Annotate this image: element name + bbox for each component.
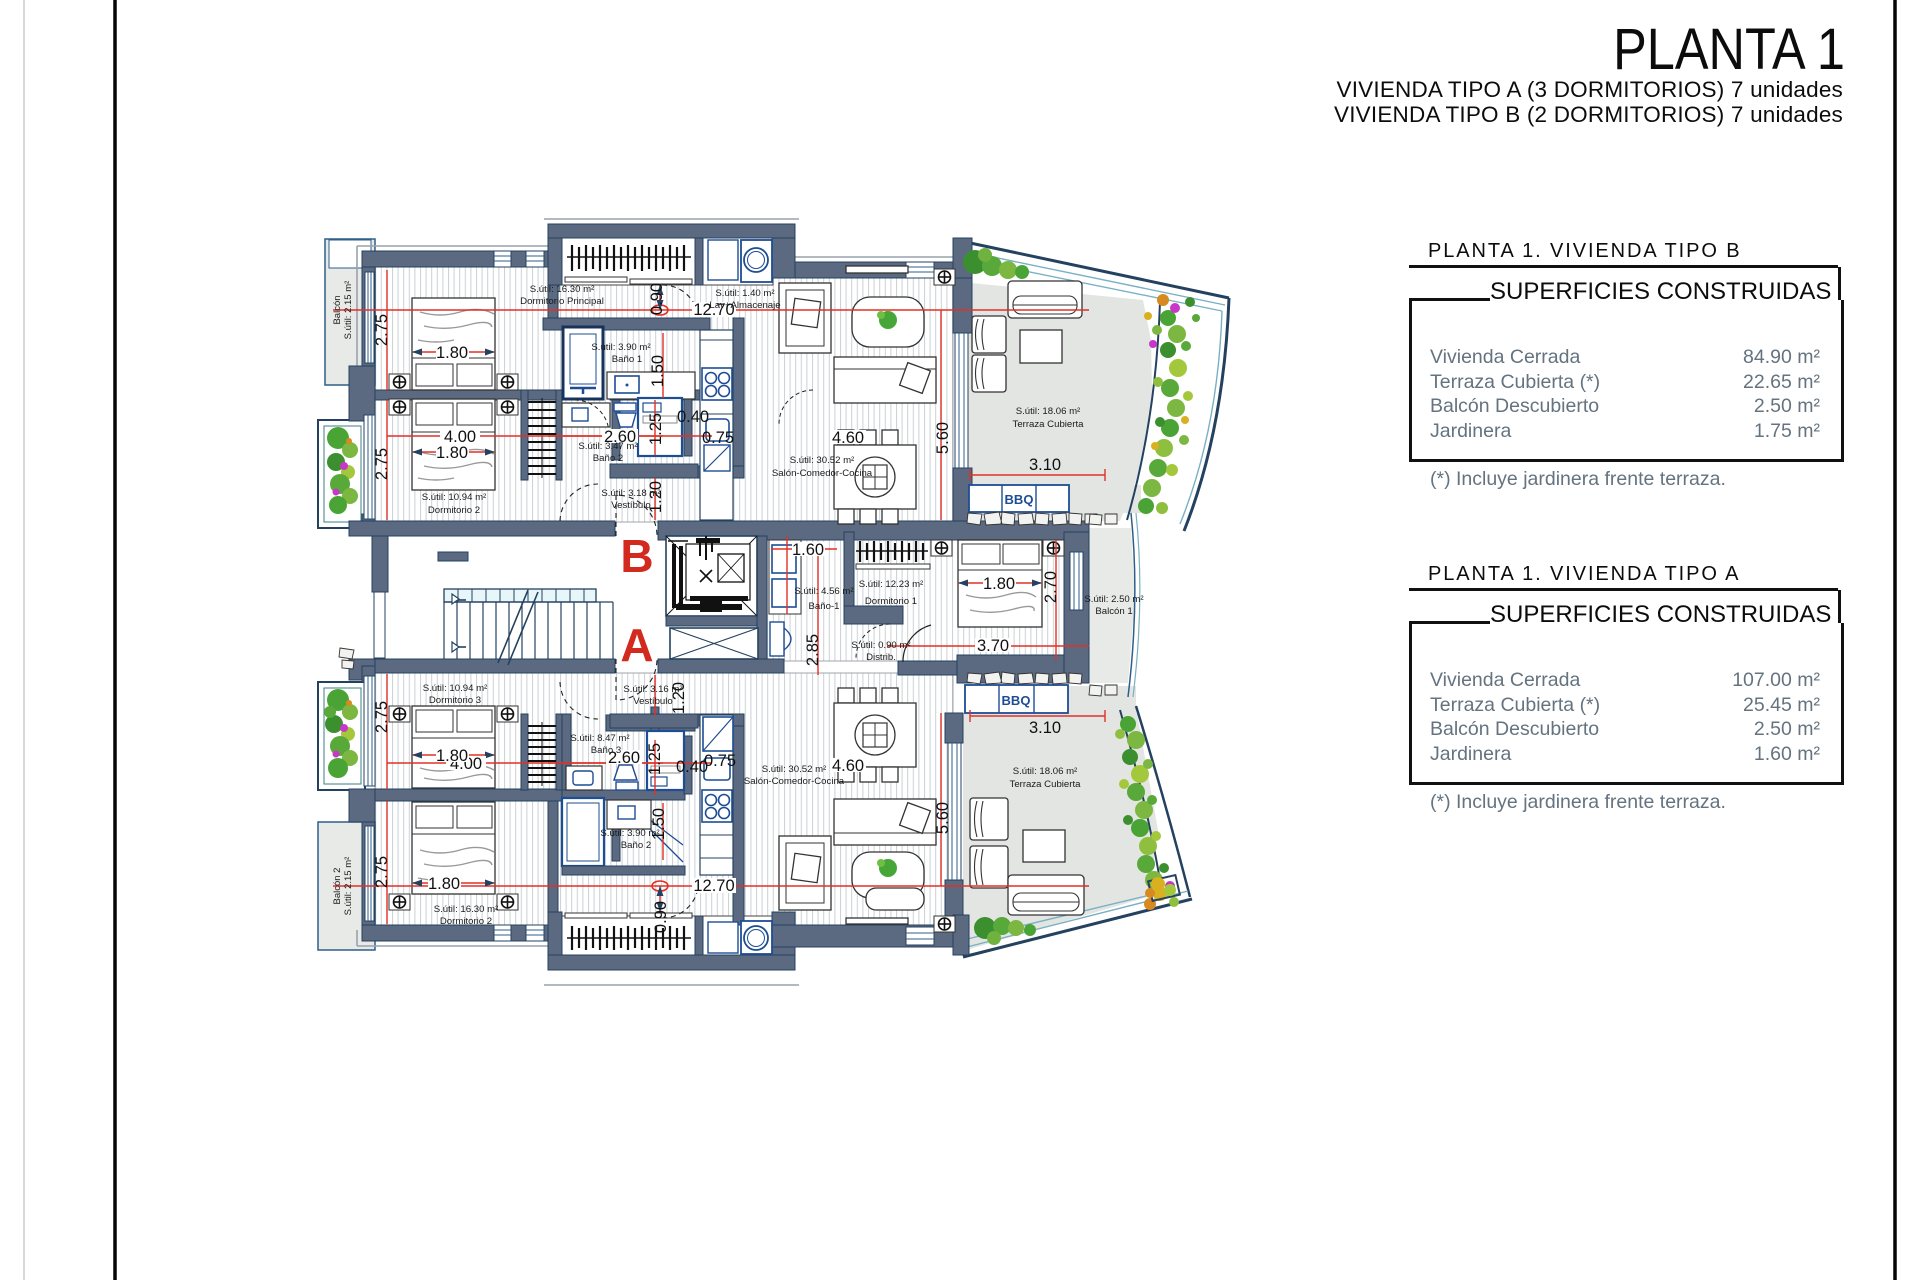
svg-text:1.50: 1.50 xyxy=(649,355,667,387)
svg-text:0.75: 0.75 xyxy=(704,752,736,770)
svg-text:1.80: 1.80 xyxy=(436,444,468,462)
svg-text:S.útil: 16.30 m²: S.útil: 16.30 m² xyxy=(434,904,499,915)
svg-text:S.útil: 18.06 m²: S.útil: 18.06 m² xyxy=(1016,406,1081,417)
svg-text:S.útil: 3.90 m²: S.útil: 3.90 m² xyxy=(600,828,660,839)
svg-text:Lav+Almacenaje: Lav+Almacenaje xyxy=(709,300,780,311)
svg-text:A: A xyxy=(620,619,653,671)
svg-text:S.útil: 30.52 m²: S.útil: 30.52 m² xyxy=(762,764,827,775)
svg-text:Dormitorio 1: Dormitorio 1 xyxy=(865,596,917,607)
svg-text:Terraza Cubierta: Terraza Cubierta xyxy=(1013,419,1085,430)
svg-text:S.útil: 10.94 m²: S.útil: 10.94 m² xyxy=(422,492,487,503)
svg-text:Distrib.: Distrib. xyxy=(866,652,896,663)
svg-text:S.útil: 2.15 m²: S.útil: 2.15 m² xyxy=(343,281,354,340)
svg-text:3.10: 3.10 xyxy=(1029,456,1061,474)
svg-text:BBQ: BBQ xyxy=(1002,693,1031,708)
svg-text:S.útil: 0.90 m²: S.útil: 0.90 m² xyxy=(851,640,911,651)
svg-text:S.útil: 2.50 m²: S.útil: 2.50 m² xyxy=(1084,594,1144,605)
svg-text:Balcón 1: Balcón 1 xyxy=(1095,606,1132,617)
svg-text:Dormitorio 3: Dormitorio 3 xyxy=(429,695,481,706)
svg-text:1.80: 1.80 xyxy=(428,875,460,893)
svg-text:1.60: 1.60 xyxy=(792,541,824,559)
svg-text:Baño 3: Baño 3 xyxy=(591,745,621,756)
svg-text:1.25: 1.25 xyxy=(647,413,665,445)
svg-text:S.útil: 10.94 m²: S.útil: 10.94 m² xyxy=(423,683,488,694)
svg-text:Dormitorio Principal: Dormitorio Principal xyxy=(520,296,604,307)
svg-text:S.útil: 4.56 m²: S.útil: 4.56 m² xyxy=(794,586,854,597)
svg-text:S.útil: 3.90 m²: S.útil: 3.90 m² xyxy=(591,342,651,353)
svg-text:Dormitorio 2: Dormitorio 2 xyxy=(440,916,492,927)
svg-text:S.útil: 3.47 m²: S.útil: 3.47 m² xyxy=(578,441,638,452)
svg-text:5.60: 5.60 xyxy=(934,422,952,454)
svg-text:Vestíbulo: Vestíbulo xyxy=(633,696,672,707)
svg-text:Baño 2: Baño 2 xyxy=(621,840,651,851)
svg-text:2.85: 2.85 xyxy=(804,634,822,666)
svg-text:2.75: 2.75 xyxy=(373,701,391,733)
svg-text:3.70: 3.70 xyxy=(977,637,1009,655)
svg-text:Balcón 2: Balcón 2 xyxy=(332,868,343,905)
svg-text:S.útil: 16.30 m²: S.útil: 16.30 m² xyxy=(530,284,595,295)
svg-text:2.70: 2.70 xyxy=(1042,571,1060,603)
svg-text:0.40: 0.40 xyxy=(677,408,709,426)
svg-text:S.útil: 30.52 m²: S.útil: 30.52 m² xyxy=(790,455,855,466)
svg-text:5.60: 5.60 xyxy=(934,802,952,834)
svg-text:1.80: 1.80 xyxy=(436,747,468,765)
svg-text:4.60: 4.60 xyxy=(832,429,864,447)
svg-text:3.10: 3.10 xyxy=(1029,719,1061,737)
svg-text:2.75: 2.75 xyxy=(373,314,391,346)
svg-text:S.útil: 8.47 m²: S.útil: 8.47 m² xyxy=(570,733,630,744)
svg-text:Terraza Cubierta: Terraza Cubierta xyxy=(1010,779,1082,790)
svg-text:Salón-Comedor-Cocina: Salón-Comedor-Cocina xyxy=(744,776,845,787)
svg-text:S.útil: 18.06 m²: S.útil: 18.06 m² xyxy=(1013,766,1078,777)
svg-text:Baño 2: Baño 2 xyxy=(593,453,623,464)
svg-text:12.70: 12.70 xyxy=(693,877,734,895)
svg-text:Vestíbulo: Vestíbulo xyxy=(611,500,650,511)
svg-text:0.75: 0.75 xyxy=(702,429,734,447)
svg-text:Salón-Comedor-Cocina: Salón-Comedor-Cocina xyxy=(772,468,873,479)
svg-text:Baño 1: Baño 1 xyxy=(612,354,642,365)
svg-text:S.útil: 12.23 m²: S.útil: 12.23 m² xyxy=(859,579,924,590)
svg-text:S.útil: 1.40 m²: S.útil: 1.40 m² xyxy=(715,288,775,299)
svg-text:2.75: 2.75 xyxy=(373,856,391,888)
svg-text:1.80: 1.80 xyxy=(436,344,468,362)
svg-text:BBQ: BBQ xyxy=(1005,492,1034,507)
svg-text:S.útil: 2.15 m²: S.útil: 2.15 m² xyxy=(343,857,354,916)
svg-text:1.25: 1.25 xyxy=(646,743,664,775)
svg-text:B: B xyxy=(620,530,653,582)
svg-text:Balcón: Balcón xyxy=(332,295,343,324)
svg-text:4.60: 4.60 xyxy=(832,757,864,775)
svg-text:Baño-1: Baño-1 xyxy=(809,601,840,612)
svg-text:0.90: 0.90 xyxy=(652,901,670,933)
svg-text:0.90: 0.90 xyxy=(648,283,666,315)
svg-text:S.útil: 3.18 m²: S.útil: 3.18 m² xyxy=(601,488,661,499)
svg-text:S.útil: 3.16 m²: S.útil: 3.16 m² xyxy=(623,684,683,695)
svg-text:2.75: 2.75 xyxy=(373,448,391,480)
svg-text:Dormitorio 2: Dormitorio 2 xyxy=(428,505,480,516)
svg-text:1.80: 1.80 xyxy=(983,575,1015,593)
